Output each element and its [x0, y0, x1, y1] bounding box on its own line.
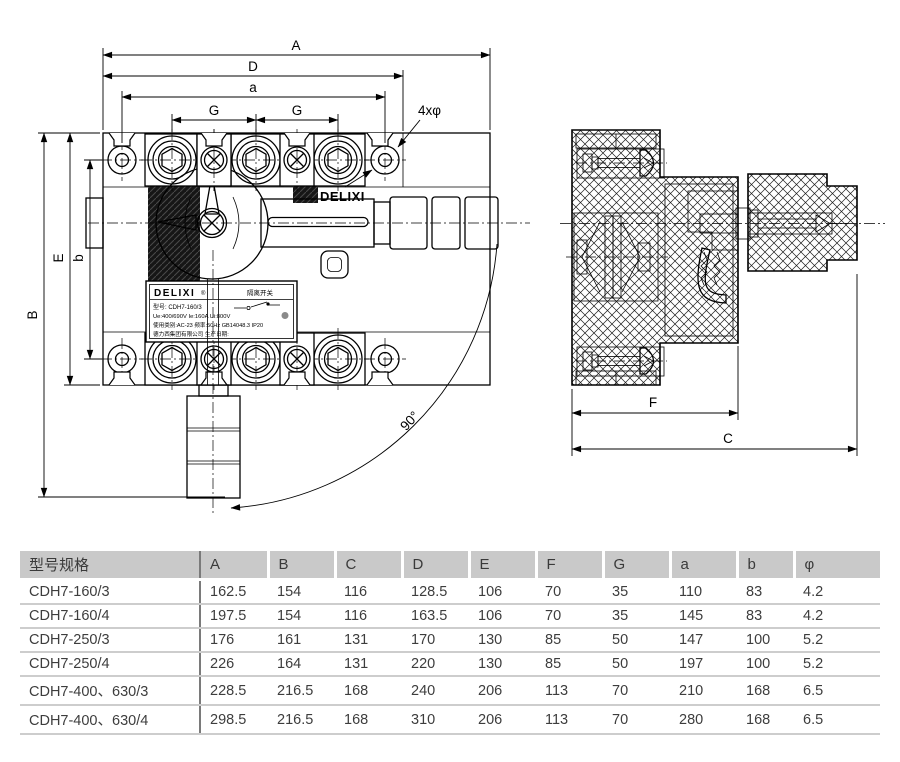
model-cell: CDH7-160/3 [20, 580, 200, 605]
nameplate-company: 德力西集团有限公司 生产日期: [153, 330, 229, 338]
spec-value-cell: 240 [402, 676, 469, 705]
front-view-dimensions: A D a G G 4xφ B E b [25, 38, 490, 497]
dimension-label-C: C [723, 431, 733, 446]
padlock-port [321, 251, 348, 278]
spec-value-cell: 5.2 [794, 652, 880, 676]
table-header-cell: D [402, 551, 469, 580]
spec-value-cell: 145 [670, 604, 737, 628]
dimension-label-F: F [649, 395, 657, 410]
table-header-cell: B [268, 551, 335, 580]
spec-value-cell: 70 [603, 676, 670, 705]
spec-value-cell: 35 [603, 604, 670, 628]
spec-value-cell: 113 [536, 705, 603, 734]
spec-value-cell: 85 [536, 652, 603, 676]
nameplate-model: 型号: CDH7-160/3 [153, 303, 202, 311]
technical-drawing: DELIXI [0, 0, 900, 545]
spec-value-cell: 168 [737, 676, 794, 705]
nameplate-brand: DELIXI [154, 288, 195, 299]
table-header-cell: E [469, 551, 536, 580]
spec-value-cell: 131 [335, 652, 402, 676]
spec-value-cell: 168 [737, 705, 794, 734]
brand-logo-text: DELIXI [320, 189, 365, 204]
spec-value-cell: 170 [402, 628, 469, 652]
spec-value-cell: 70 [536, 604, 603, 628]
dimension-label-a: a [249, 80, 257, 95]
spec-table-header-row: 型号规格ABCDEFGabφ [20, 551, 880, 580]
spec-value-cell: 83 [737, 580, 794, 605]
model-cell: CDH7-160/4 [20, 604, 200, 628]
spec-value-cell: 298.5 [200, 705, 268, 734]
dimension-label-E: E [51, 253, 66, 262]
dimension-label-B: B [25, 310, 40, 319]
nameplate-dot [282, 312, 289, 319]
spec-value-cell: 35 [603, 580, 670, 605]
spec-value-cell: 147 [670, 628, 737, 652]
spec-value-cell: 4.2 [794, 604, 880, 628]
table-row: CDH7-250/422616413122013085501971005.2 [20, 652, 880, 676]
spec-value-cell: 106 [469, 604, 536, 628]
spec-value-cell: 226 [200, 652, 268, 676]
nameplate-category: 使用类别:AC-23 频率:50Hz GB14048.3 IP20 [153, 321, 263, 329]
table-header-cell: a [670, 551, 737, 580]
spec-value-cell: 161 [268, 628, 335, 652]
table-header-cell: φ [794, 551, 880, 580]
spec-value-cell: 210 [670, 676, 737, 705]
table-header-model: 型号规格 [20, 551, 200, 580]
spec-value-cell: 85 [536, 628, 603, 652]
spec-value-cell: 130 [469, 652, 536, 676]
spec-value-cell: 206 [469, 676, 536, 705]
spec-value-cell: 6.5 [794, 705, 880, 734]
spec-value-cell: 206 [469, 705, 536, 734]
spec-value-cell: 130 [469, 628, 536, 652]
nameplate: DELIXI ® 隔离开关 型号: CDH7-160/3 Ue:400/690V… [146, 281, 297, 342]
spec-value-cell: 280 [670, 705, 737, 734]
bottom-shaft [187, 385, 240, 498]
table-header-cell: F [536, 551, 603, 580]
dimension-label-G: G [209, 103, 220, 118]
spec-table-body: CDH7-160/3162.5154116128.51067035110834.… [20, 580, 880, 735]
spec-table: 型号规格ABCDEFGabφ CDH7-160/3162.5154116128.… [20, 551, 880, 735]
spec-value-cell: 220 [402, 652, 469, 676]
dimension-label-A: A [291, 38, 300, 53]
model-cell: CDH7-250/3 [20, 628, 200, 652]
spec-value-cell: 197 [670, 652, 737, 676]
spec-value-cell: 5.2 [794, 628, 880, 652]
spec-value-cell: 100 [737, 628, 794, 652]
nameplate-product: 隔离开关 [247, 288, 274, 297]
spec-value-cell: 116 [335, 604, 402, 628]
spec-value-cell: 163.5 [402, 604, 469, 628]
spec-value-cell: 216.5 [268, 676, 335, 705]
spec-value-cell: 168 [335, 705, 402, 734]
model-cell: CDH7-400、630/4 [20, 705, 200, 734]
spec-value-cell: 228.5 [200, 676, 268, 705]
table-row: CDH7-250/317616113117013085501471005.2 [20, 628, 880, 652]
spec-value-cell: 50 [603, 628, 670, 652]
spec-value-cell: 131 [335, 628, 402, 652]
spec-value-cell: 4.2 [794, 580, 880, 605]
dimension-label-D: D [248, 59, 258, 74]
spec-value-cell: 100 [737, 652, 794, 676]
front-view-drawing: DELIXI [86, 129, 530, 516]
table-header-cell: b [737, 551, 794, 580]
side-view-drawing: F C [560, 130, 885, 456]
spec-value-cell: 154 [268, 604, 335, 628]
spec-value-cell: 106 [469, 580, 536, 605]
table-row: CDH7-160/4197.5154116163.51067035145834.… [20, 604, 880, 628]
spec-value-cell: 50 [603, 652, 670, 676]
model-cell: CDH7-250/4 [20, 652, 200, 676]
spec-value-cell: 176 [200, 628, 268, 652]
spec-value-cell: 6.5 [794, 676, 880, 705]
table-row: CDH7-400、630/3228.5216.51682402061137021… [20, 676, 880, 705]
spec-value-cell: 70 [603, 705, 670, 734]
spec-value-cell: 110 [670, 580, 737, 605]
spec-value-cell: 116 [335, 580, 402, 605]
technical-drawing-page: DELIXI [0, 0, 900, 762]
table-header-cell: C [335, 551, 402, 580]
table-row: CDH7-400、630/4298.5216.51683102061137028… [20, 705, 880, 734]
spec-value-cell: 162.5 [200, 580, 268, 605]
model-cell: CDH7-400、630/3 [20, 676, 200, 705]
spec-value-cell: 168 [335, 676, 402, 705]
spec-value-cell: 154 [268, 580, 335, 605]
dimension-label-G2: G [292, 103, 303, 118]
table-header-cell: A [200, 551, 268, 580]
spec-value-cell: 128.5 [402, 580, 469, 605]
spec-value-cell: 216.5 [268, 705, 335, 734]
table-row: CDH7-160/3162.5154116128.51067035110834.… [20, 580, 880, 605]
dimension-label-holes: 4xφ [418, 103, 441, 118]
spec-value-cell: 70 [536, 580, 603, 605]
spec-value-cell: 310 [402, 705, 469, 734]
registered-mark: ® [201, 290, 206, 297]
dimension-label-angle: 90° [397, 408, 422, 433]
side-handle-knob [748, 174, 857, 271]
spec-value-cell: 83 [737, 604, 794, 628]
spec-table-container: 型号规格ABCDEFGabφ CDH7-160/3162.5154116128.… [20, 551, 880, 735]
spec-value-cell: 164 [268, 652, 335, 676]
spec-value-cell: 197.5 [200, 604, 268, 628]
spec-value-cell: 113 [536, 676, 603, 705]
dimension-label-b: b [71, 254, 86, 262]
table-header-cell: G [603, 551, 670, 580]
